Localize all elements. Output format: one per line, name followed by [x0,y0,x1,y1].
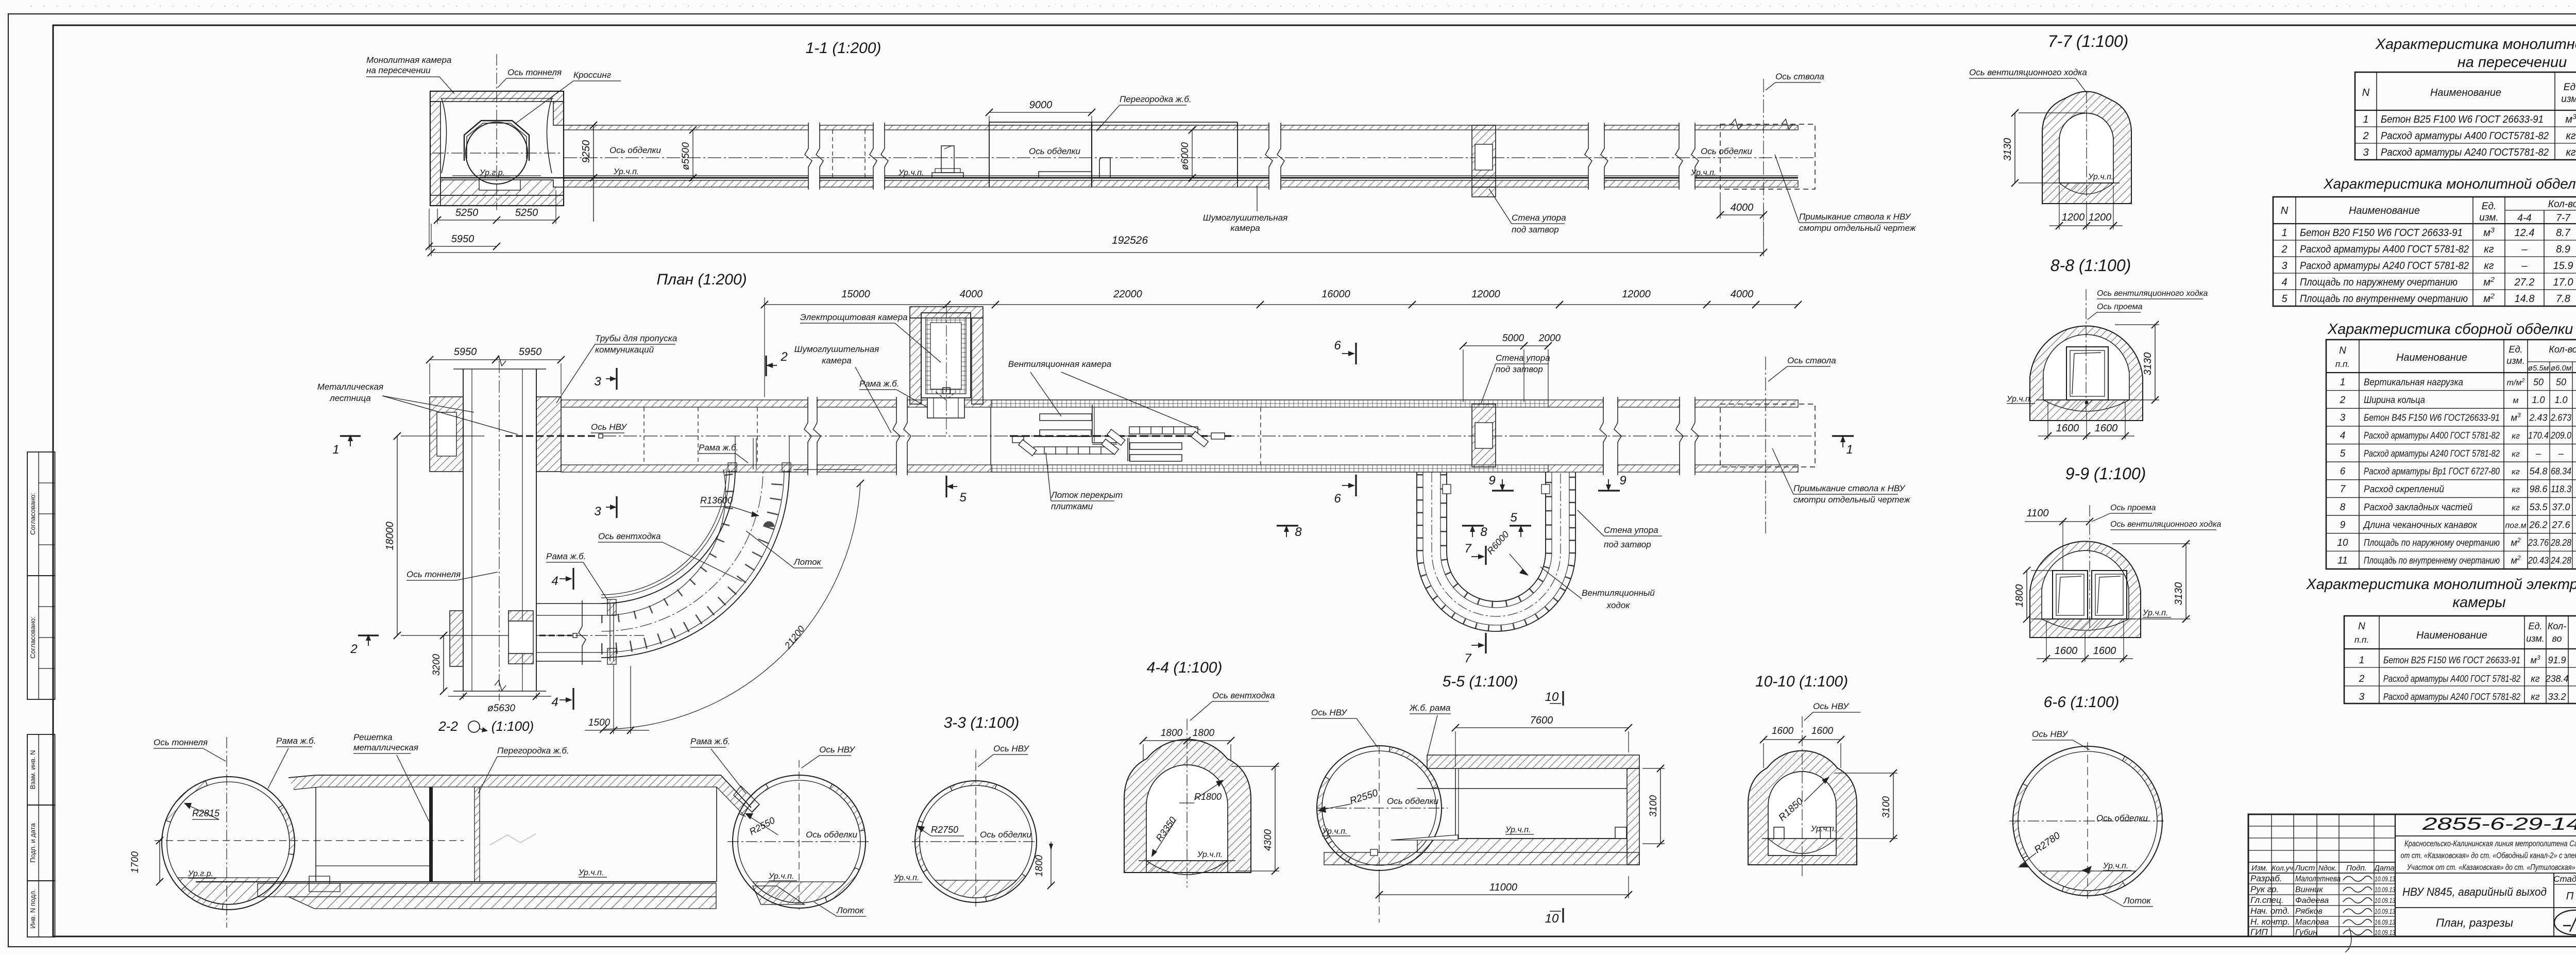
svg-text:4: 4 [551,574,558,588]
svg-text:Лоток: Лоток [793,557,822,567]
svg-text:Ширина кольца: Ширина кольца [2364,395,2425,405]
svg-text:Расход скреплений: Расход скреплений [2364,484,2444,494]
svg-text:2: 2 [2359,674,2365,684]
svg-text:Красносельско-Калининская лини: Красносельско-Калининская линия метропол… [2404,840,2576,848]
svg-text:ø5630: ø5630 [487,703,515,714]
svg-text:9-9 (1:100): 9-9 (1:100) [2065,464,2146,483]
svg-text:5: 5 [1510,511,1517,525]
svg-text:Расход арматуры А400 ГОСТ 5781: Расход арматуры А400 ГОСТ 5781-82 [2383,674,2520,684]
svg-text:14.8: 14.8 [2515,293,2535,305]
svg-text:5950: 5950 [519,346,542,358]
svg-text:камера: камера [1230,223,1260,233]
svg-text:Лоток перекрыт: Лоток перекрыт [1050,490,1123,500]
svg-text:м: м [2513,396,2519,405]
svg-text:3: 3 [2363,147,2368,158]
svg-text:лестница: лестница [329,393,371,403]
svg-text:Рама ж.б.: Рама ж.б. [546,551,586,561]
svg-text:15000: 15000 [841,289,870,300]
svg-text:Ось обделки: Ось обделки [1387,796,1438,806]
svg-text:7600: 7600 [1530,715,1553,726]
svg-text:кг: кг [2566,147,2575,158]
svg-text:9: 9 [2340,520,2346,530]
svg-text:4000: 4000 [1731,289,1754,300]
svg-text:Рама ж.б.: Рама ж.б. [276,736,316,746]
svg-text:Ур.ч.п.: Ур.ч.п. [893,874,919,882]
svg-text:Рама ж.б.: Рама ж.б. [859,379,899,389]
svg-text:плитками: плитками [1051,501,1093,511]
svg-text:N: N [2358,621,2365,632]
svg-text:2.673: 2.673 [2550,413,2571,423]
svg-text:кг: кг [2566,130,2575,142]
svg-text:Стадия: Стадия [2553,874,2576,884]
svg-text:Характеристика сборной обдел: Характеристика сборной обделки на 1 коль… [2327,321,2576,338]
svg-text:1600: 1600 [1772,726,1794,736]
svg-text:пог.м: пог.м [2505,521,2526,530]
svg-text:ø6.0м: ø6.0м [2551,364,2571,373]
svg-text:Кол.уч: Кол.уч [2272,864,2293,872]
svg-text:Лоток: Лоток [2123,896,2151,906]
svg-text:98.6: 98.6 [2529,484,2548,494]
svg-text:Ось вентиляционного ходка: Ось вентиляционного ходка [2097,289,2208,298]
svg-text:Площадь по внутреннему очертан: Площадь по внутреннему очертанию [2300,293,2468,305]
svg-text:5950: 5950 [454,346,477,358]
svg-text:1800: 1800 [1034,855,1045,877]
svg-text:Перегородка ж.б.: Перегородка ж.б. [497,746,569,756]
svg-text:1: 1 [2363,114,2368,125]
svg-text:Ур.ч.п.: Ур.ч.п. [613,167,639,176]
svg-text:кг: кг [2512,468,2520,477]
svg-text:Ось НВУ: Ось НВУ [2032,729,2069,739]
svg-text:5000: 5000 [1502,333,1524,344]
svg-text:26.2: 26.2 [2529,520,2547,530]
svg-text:Характеристика монолитной эл: Характеристика монолитной электрощитовой [2306,576,2576,593]
svg-text:2: 2 [2362,130,2368,142]
svg-text:4300: 4300 [1263,829,1274,851]
svg-text:8: 8 [1480,525,1487,539]
svg-text:28.28: 28.28 [2550,538,2571,548]
svg-text:изм.: изм. [2479,212,2499,223]
svg-text:Расход арматуры Вр1 ГОСТ 6727-: Расход арматуры Вр1 ГОСТ 6727-80 [2364,466,2500,477]
svg-text:Изм.: Изм. [2251,864,2268,873]
svg-text:27.6: 27.6 [2551,520,2570,530]
svg-text:Ось обделки: Ось обделки [980,830,1031,840]
svg-text:9: 9 [1619,474,1626,488]
svg-text:Подп.: Подп. [2346,864,2367,873]
svg-text:Гл.спец.: Гл.спец. [2250,895,2284,905]
svg-text:3130: 3130 [2173,582,2184,606]
svg-text:1.0: 1.0 [2532,395,2545,405]
svg-text:металлическая: металлическая [353,743,418,752]
svg-text:1700: 1700 [130,851,141,873]
svg-text:Примыкание ствола к НВУ: Примыкание ствола к НВУ [1793,483,1906,493]
svg-text:Ось НВУ: Ось НВУ [591,422,628,432]
svg-text:Ур.ч.п.: Ур.ч.п. [768,872,794,881]
svg-text:3: 3 [2281,260,2287,272]
svg-text:Решетка: Решетка [353,732,393,742]
svg-text:10.09.13: 10.09.13 [2375,896,2395,904]
svg-text:п.п.: п.п. [2354,635,2369,645]
svg-text:Бетон В20 F150 W6 ГОСТ 26633-9: Бетон В20 F150 W6 ГОСТ 26633-91 [2300,227,2463,239]
svg-text:изм.: изм. [2526,633,2545,644]
svg-text:4-4: 4-4 [2517,213,2531,224]
svg-text:Ось обделки: Ось обделки [2096,813,2148,823]
svg-text:Дата: Дата [2373,864,2395,873]
svg-text:Расход закладных частей: Расход закладных частей [2364,502,2472,512]
svg-text:16.09.13: 16.09.13 [2375,918,2395,926]
svg-text:Перегородка ж.б.: Перегородка ж.б. [1120,94,1192,104]
svg-text:5250: 5250 [455,207,479,219]
svg-text:–: – [2521,260,2528,272]
svg-text:1600: 1600 [2095,423,2118,434]
svg-text:3100: 3100 [1881,796,1892,818]
svg-text:Ед.: Ед. [2509,344,2523,355]
svg-text:ø6000: ø6000 [1180,142,1191,170]
svg-text:53.5: 53.5 [2529,502,2548,512]
svg-text:Площадь по наружному очертанию: Площадь по наружному очертанию [2364,538,2500,548]
svg-text:7-7 (1:100): 7-7 (1:100) [2048,32,2129,51]
svg-text:Кол-во: Кол-во [2548,199,2576,210]
svg-text:Ед.: Ед. [2529,621,2543,631]
svg-text:Расход арматуры А400 ГОСТ 5781: Расход арматуры А400 ГОСТ 5781-82 [2300,244,2469,255]
svg-text:6: 6 [1334,339,1341,353]
svg-text:16000: 16000 [1321,289,1350,300]
svg-text:1800: 1800 [1193,728,1215,739]
svg-text:2: 2 [2281,244,2287,255]
svg-text:Винник: Винник [2295,885,2324,894]
svg-text:Ось тоннеля: Ось тоннеля [406,569,461,579]
svg-text:Ед.: Ед. [2564,82,2576,93]
svg-text:Ось НВУ: Ось НВУ [1813,701,1850,711]
svg-text:1200: 1200 [2089,212,2112,223]
svg-text:Фадеева: Фадеева [2295,896,2329,905]
svg-text:Расход арматуры А240 ГОСТ 5781: Расход арматуры А240 ГОСТ 5781-82 [2300,260,2469,272]
svg-text:План, разрезы: План, разрезы [2436,916,2513,929]
svg-text:Площадь по наружнему очертанию: Площадь по наружнему очертанию [2300,277,2458,288]
svg-text:Бетон В25 F150 W6 ГОСТ 26633-9: Бетон В25 F150 W6 ГОСТ 26633-91 [2383,655,2520,665]
svg-text:118.3: 118.3 [2551,484,2571,494]
svg-text:камера: камера [822,356,852,365]
svg-text:3: 3 [594,505,601,518]
svg-text:12000: 12000 [1471,289,1500,300]
svg-text:Наименование: Наименование [2396,352,2467,363]
svg-text:5250: 5250 [515,207,538,219]
svg-text:9000: 9000 [1029,99,1053,111]
svg-text:Лоток: Лоток [836,906,865,915]
svg-text:5950: 5950 [451,233,474,245]
svg-text:209.0: 209.0 [2550,430,2571,441]
svg-text:1800: 1800 [2014,584,2025,608]
svg-text:7: 7 [2340,484,2346,495]
svg-text:8-8 (1:100): 8-8 (1:100) [2050,256,2131,275]
svg-text:68.34: 68.34 [2551,466,2571,477]
svg-text:Ось вентходка: Ось вентходка [1212,691,1275,700]
svg-text:10.09.13: 10.09.13 [2375,875,2395,883]
svg-text:Ур.ч.п.: Ур.ч.п. [2006,395,2032,404]
svg-text:22000: 22000 [1113,289,1142,300]
svg-text:Нач. отд.: Нач. отд. [2250,906,2290,916]
svg-text:2000: 2000 [1538,333,1561,344]
svg-text:10: 10 [1545,690,1559,704]
svg-text:ø5500: ø5500 [681,142,691,170]
svg-text:п.п.: п.п. [2335,359,2350,369]
svg-text:кг: кг [2531,674,2539,684]
svg-text:Участок от ст. «Казаковская» д: Участок от ст. «Казаковская» до ст. «Пут… [2406,863,2576,872]
svg-text:8.7: 8.7 [2556,227,2571,239]
svg-text:от ст. «Казаковская» до ст. «О: от ст. «Казаковская» до ст. «Обводный ка… [2401,851,2576,860]
svg-text:(1:100): (1:100) [492,718,534,734]
svg-text:Электрощитовая камера: Электрощитовая камера [800,312,908,322]
svg-text:Бетон В25 F100 W6 ГОСТ 26633-9: Бетон В25 F100 W6 ГОСТ 26633-91 [2381,114,2544,125]
svg-text:Кол-во: Кол-во [2549,344,2576,355]
svg-text:Ур.ч.п.: Ур.ч.п. [1197,850,1223,859]
svg-text:–: – [2558,448,2564,459]
svg-text:Ось тоннеля: Ось тоннеля [154,738,208,747]
svg-text:11: 11 [2337,556,2348,566]
svg-text:Вентиляционная камера: Вентиляционная камера [1008,359,1112,369]
svg-text:Ось тоннеля: Ось тоннеля [507,68,562,77]
svg-text:7: 7 [1464,542,1472,556]
svg-text:–: – [2521,244,2528,255]
svg-text:5: 5 [959,491,967,505]
svg-text:27.2: 27.2 [2514,277,2535,288]
svg-text:смотри отдельный чертеж: смотри отдельный чертеж [1799,223,1917,233]
svg-text:Ось проема: Ось проема [2110,504,2156,512]
svg-text:Ось обделки: Ось обделки [806,830,857,840]
svg-text:Ось НВУ: Ось НВУ [1311,708,1348,717]
svg-text:кг: кг [2531,692,2539,702]
svg-text:Разраб.: Разраб. [2250,874,2282,883]
svg-text:8: 8 [1295,525,1302,539]
svg-text:Ур.ч.п.: Ур.ч.п. [1810,825,1836,833]
svg-text:во: во [2552,633,2562,644]
svg-text:кг: кг [2512,432,2520,441]
svg-text:10: 10 [1545,912,1559,926]
svg-text:Расход арматуры А400 ГОСТ5781-: Расход арматуры А400 ГОСТ5781-82 [2381,130,2549,142]
svg-text:6: 6 [1334,492,1341,506]
svg-text:9250: 9250 [581,140,592,163]
svg-text:1.0: 1.0 [2554,395,2567,405]
svg-text:3130: 3130 [2002,138,2013,161]
svg-text:3200: 3200 [431,654,442,676]
svg-text:Nдок.: Nдок. [2318,864,2337,872]
svg-text:1-1 (1:200): 1-1 (1:200) [806,40,882,57]
svg-text:3-3 (1:100): 3-3 (1:100) [944,714,1020,731]
svg-text:под затвор: под затвор [1604,540,1651,549]
svg-text:3100: 3100 [1648,795,1659,817]
svg-text:изм.: изм. [2561,94,2576,105]
svg-text:Ж.б. рама: Ж.б. рама [1409,703,1450,713]
svg-text:ГИП: ГИП [2250,927,2268,937]
svg-text:Рама ж.б.: Рама ж.б. [699,443,738,453]
svg-text:смотри отдельный чертеж: смотри отдельный чертеж [1793,495,1911,505]
svg-text:2855-6-29-148-КЖ: 2855-6-29-148-КЖ [2421,814,2576,834]
svg-text:камеры: камеры [2452,594,2505,611]
svg-text:4: 4 [2340,430,2346,441]
svg-text:1: 1 [2340,377,2346,388]
svg-text:1800: 1800 [1161,728,1183,739]
svg-text:кг: кг [2484,244,2494,255]
svg-text:4000: 4000 [960,289,983,300]
svg-text:План (1:200): План (1:200) [656,271,747,288]
svg-text:–: – [2535,448,2541,459]
svg-text:Стена упора: Стена упора [1604,525,1658,535]
svg-text:3: 3 [594,375,601,389]
svg-text:Инв. N подл.: Инв. N подл. [29,889,37,928]
svg-text:НВУ N845, аварийный выход: НВУ N845, аварийный выход [2402,885,2547,898]
svg-text:Лист: Лист [2295,864,2315,873]
svg-text:Ось НВУ: Ось НВУ [993,744,1030,753]
svg-text:54.8: 54.8 [2529,466,2547,477]
svg-text:1500: 1500 [588,717,611,728]
svg-text:Ур.ч.п.: Ур.ч.п. [1321,827,1347,836]
svg-text:Примыкание ствола к НВУ: Примыкание ствола к НВУ [1799,212,1911,222]
svg-text:238.4: 238.4 [2545,674,2568,684]
svg-text:Кроссинг: Кроссинг [573,70,611,80]
svg-text:1: 1 [2281,227,2287,239]
svg-text:R2750: R2750 [931,825,958,835]
svg-text:Расход арматуры А400 ГОСТ 5781: Расход арматуры А400 ГОСТ 5781-82 [2364,430,2500,441]
svg-text:Ур.г.р.: Ур.г.р. [479,169,505,177]
svg-text:Стена упора: Стена упора [1512,213,1566,223]
svg-text:8: 8 [2340,502,2346,513]
svg-text:Рук гр.: Рук гр. [2250,884,2279,894]
svg-text:Ур.ч.п.: Ур.ч.п. [1690,169,1716,177]
svg-text:7.8: 7.8 [2556,293,2570,305]
svg-text:4: 4 [551,695,558,709]
svg-text:10-10 (1:100): 10-10 (1:100) [1755,673,1848,690]
svg-text:изм.: изм. [2506,356,2525,366]
svg-text:Вентиляционный: Вентиляционный [1582,588,1655,598]
svg-text:3130: 3130 [2142,353,2154,376]
svg-text:2: 2 [2340,395,2346,406]
svg-text:Металлическая: Металлическая [317,382,383,392]
svg-text:R13600: R13600 [700,495,733,506]
svg-text:33.2: 33.2 [2548,692,2566,702]
svg-text:12000: 12000 [1622,289,1651,300]
svg-text:1100: 1100 [2026,508,2048,519]
svg-text:12.4: 12.4 [2515,227,2535,239]
svg-text:Вертикальная нагрузка: Вертикальная нагрузка [2364,377,2463,387]
svg-text:10.09.13: 10.09.13 [2375,928,2395,936]
svg-text:1200: 1200 [2062,212,2085,223]
svg-text:Наименование: Наименование [2416,630,2487,641]
svg-text:3: 3 [2359,692,2365,702]
svg-text:2-2: 2-2 [438,718,458,734]
svg-text:N: N [2362,87,2370,98]
svg-text:Ур.ч.п.: Ур.ч.п. [898,169,924,177]
svg-text:10.09.13: 10.09.13 [2375,907,2395,915]
svg-text:1: 1 [2359,655,2365,666]
svg-text:Бетон В45 F150 W6 ГОСТ26633-91: Бетон В45 F150 W6 ГОСТ26633-91 [2364,413,2500,423]
svg-text:Площадь по внутреннему очертан: Площадь по внутреннему очертанию [2364,556,2500,566]
svg-text:1: 1 [332,443,339,457]
svg-text:ходок: ходок [1606,600,1631,610]
svg-text:2.43: 2.43 [2529,413,2547,423]
svg-text:37.0: 37.0 [2552,502,2570,512]
svg-text:5-5 (1:100): 5-5 (1:100) [1443,673,1518,690]
svg-text:5: 5 [2340,448,2346,459]
svg-text:Расход арматуры А240 ГОСТ5781-: Расход арматуры А240 ГОСТ5781-82 [2381,147,2549,158]
svg-text:Расход арматуры А240 ГОСТ 5781: Расход арматуры А240 ГОСТ 5781-82 [2383,692,2520,702]
svg-text:Монолитная камера: Монолитная камера [366,55,451,65]
svg-text:4-4 (1:100): 4-4 (1:100) [1147,659,1223,676]
svg-text:кг: кг [2512,504,2520,512]
svg-text:П: П [2566,891,2574,902]
svg-text:15.9: 15.9 [2553,260,2573,272]
svg-text:11000: 11000 [1489,882,1517,893]
svg-text:20.43: 20.43 [2528,556,2549,566]
svg-text:Рябков: Рябков [2295,907,2323,916]
svg-text:2: 2 [350,642,357,656]
svg-text:Стена упора: Стена упора [1496,353,1550,363]
svg-text:10: 10 [2337,538,2348,548]
svg-text:Трубы для пропуска: Трубы для пропуска [595,333,677,343]
svg-text:Ур.ч.п.: Ур.ч.п. [2103,862,2128,870]
svg-text:ø5.5м: ø5.5м [2528,364,2549,373]
svg-text:7-7: 7-7 [2556,213,2571,224]
svg-text:23.76: 23.76 [2528,538,2549,548]
svg-text:Согласовано:: Согласовано: [29,493,37,535]
svg-text:192526: 192526 [1112,234,1148,246]
svg-text:Ур.ч.п.: Ур.ч.п. [2142,609,2168,617]
svg-text:Согласовано:: Согласовано: [29,616,37,659]
svg-text:Наименование: Наименование [2430,87,2501,98]
svg-text:кг: кг [2512,485,2520,494]
svg-text:Н. контр.: Н. контр. [2250,917,2290,927]
svg-text:1600: 1600 [2093,645,2116,657]
svg-text:1600: 1600 [2055,645,2078,657]
svg-text:Ось вентиляционного ходка: Ось вентиляционного ходка [1969,68,2087,77]
svg-text:Кол-: Кол- [2548,621,2566,631]
svg-text:50: 50 [2533,377,2544,387]
svg-text:Ось обделки: Ось обделки [1029,146,1080,156]
svg-text:4: 4 [2281,277,2287,288]
svg-text:18000: 18000 [384,522,396,550]
svg-text:Ось НВУ: Ось НВУ [819,745,856,755]
svg-text:6-6 (1:100): 6-6 (1:100) [2044,694,2120,711]
svg-text:Малолетнева: Малолетнева [2295,875,2341,883]
svg-text:Ось обделки: Ось обделки [609,145,661,155]
svg-text:5: 5 [2281,293,2287,305]
svg-text:Шумоглушительная: Шумоглушительная [794,344,879,354]
svg-text:под затвор: под затвор [1512,225,1559,234]
svg-text:под затвор: под затвор [1496,364,1543,374]
svg-text:Рама ж.б.: Рама ж.б. [690,736,730,746]
svg-text:Шумоглушительная: Шумоглушительная [1203,213,1287,223]
svg-text:Ось вентиляционного ходка: Ось вентиляционного ходка [2110,520,2221,529]
svg-text:3: 3 [2340,413,2346,424]
svg-text:Ось ствола: Ось ствола [1775,72,1824,81]
svg-text:Ось обделки: Ось обделки [1701,146,1752,156]
svg-text:Ось ствола: Ось ствола [1787,356,1836,365]
svg-text:Ед.: Ед. [2482,201,2496,212]
svg-text:Подп. и дата: Подп. и дата [29,823,37,862]
svg-text:Ур.ч.п.: Ур.ч.п. [578,868,604,877]
svg-text:Ось проема: Ось проема [2097,303,2143,311]
svg-text:Маслова: Маслова [2295,918,2329,927]
svg-text:Ось вентходка: Ось вентходка [598,531,661,541]
svg-text:кг: кг [2512,450,2520,459]
svg-text:1600: 1600 [1811,726,1834,736]
svg-text:Наименование: Наименование [2349,205,2420,216]
svg-text:4000: 4000 [1731,202,1754,213]
svg-text:1600: 1600 [2056,423,2079,434]
svg-text:Расход арматуры А240 ГОСТ 5781: Расход арматуры А240 ГОСТ 5781-82 [2364,448,2500,459]
svg-text:2: 2 [780,350,787,364]
svg-text:Длина чеканочных канавок: Длина чеканочных канавок [2363,520,2478,530]
svg-text:91.9: 91.9 [2548,655,2566,665]
svg-text:Ур.г.р.: Ур.г.р. [188,869,213,878]
